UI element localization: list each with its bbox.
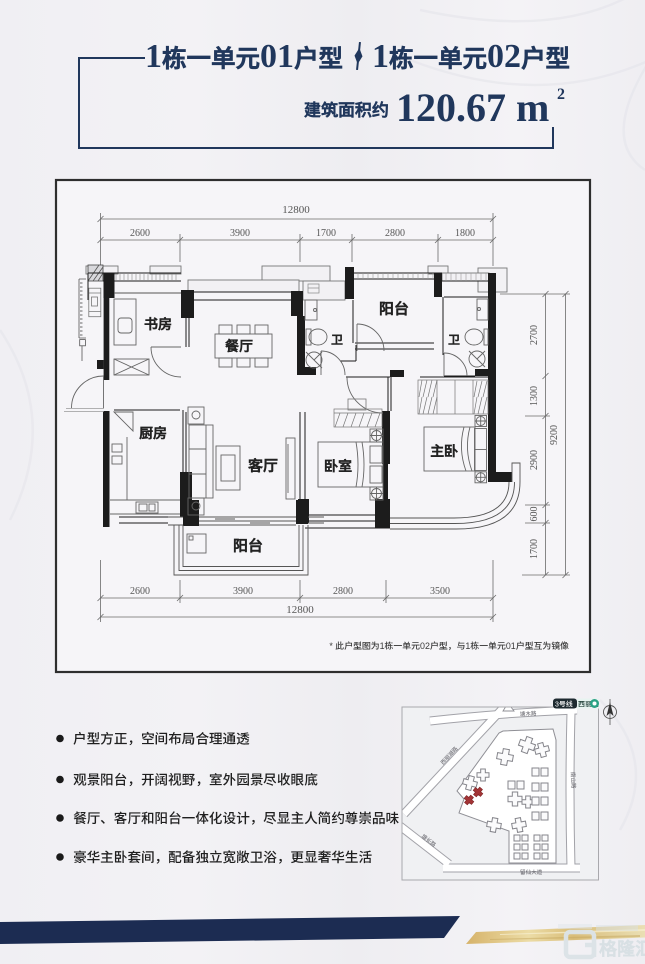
svg-text:12800: 12800 [282, 204, 310, 216]
svg-text:豪华主卧套间，配备独立宽敞卫浴，更显奢华生活: 豪华主卧套间，配备独立宽敞卫浴，更显奢华生活 [73, 846, 372, 866]
svg-text:* 此户型图为1栋一单元02户型，与1栋一单元01户型互为镜: * 此户型图为1栋一单元02户型，与1栋一单元01户型互为镜像 [329, 639, 569, 652]
svg-text:阳台: 阳台 [233, 535, 263, 556]
svg-text:2600: 2600 [130, 228, 150, 239]
svg-text:户型方正，空间布局合理通透: 户型方正，空间布局合理通透 [73, 728, 250, 748]
svg-text:3900: 3900 [230, 228, 250, 239]
svg-text:2800: 2800 [385, 228, 405, 239]
svg-text:1300: 1300 [529, 386, 540, 406]
svg-text:1栋一单元02户型: 1栋一单元02户型 [372, 38, 570, 75]
svg-text:1800: 1800 [455, 228, 475, 239]
svg-text:2900: 2900 [529, 450, 540, 470]
svg-text:留仙大道: 留仙大道 [520, 868, 543, 876]
svg-text:1700: 1700 [529, 539, 540, 559]
svg-text:2600: 2600 [130, 586, 150, 597]
svg-text:餐厅、客厅和阳台一体化设计，尽显主人简约尊崇品味: 餐厅、客厅和阳台一体化设计，尽显主人简约尊崇品味 [73, 807, 399, 827]
svg-text:3号线: 3号线 [555, 700, 573, 710]
svg-text:卫: 卫 [448, 331, 460, 348]
svg-text:书房: 书房 [144, 314, 172, 334]
svg-text:格隆汇: 格隆汇 [598, 935, 645, 961]
svg-text:厨房: 厨房 [138, 423, 167, 443]
svg-text:阳台: 阳台 [379, 298, 409, 319]
svg-text:观景阳台，开阔视野，室外园景尽收眼底: 观景阳台，开阔视野，室外园景尽收眼底 [73, 769, 318, 789]
svg-text:120.67 m: 120.67 m [396, 85, 549, 130]
svg-text:1栋一单元01户型: 1栋一单元01户型 [145, 38, 343, 75]
svg-text:建筑面积约: 建筑面积约 [303, 96, 389, 121]
svg-text:3900: 3900 [233, 586, 253, 597]
svg-text:卧室: 卧室 [324, 456, 352, 476]
svg-text:主卧: 主卧 [430, 441, 458, 461]
svg-text:12800: 12800 [286, 604, 314, 616]
svg-text:2800: 2800 [333, 586, 353, 597]
svg-text:9200: 9200 [549, 425, 560, 445]
svg-text:客厅: 客厅 [247, 455, 278, 476]
svg-text:餐厅: 餐厅 [225, 336, 253, 356]
svg-text:3500: 3500 [430, 586, 450, 597]
svg-text:2700: 2700 [529, 325, 540, 345]
svg-text:塘木路: 塘木路 [520, 709, 537, 718]
svg-text:南山路: 南山路 [569, 772, 578, 789]
svg-text:600: 600 [529, 507, 540, 522]
svg-text:1700: 1700 [316, 228, 336, 239]
svg-text:2: 2 [557, 86, 565, 103]
svg-text:卫: 卫 [331, 331, 343, 348]
